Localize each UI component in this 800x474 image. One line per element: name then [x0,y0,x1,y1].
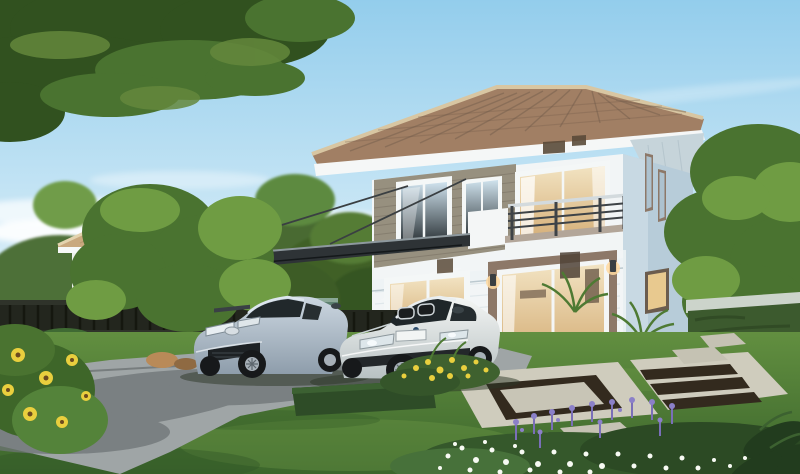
architectural-rendering [0,0,800,474]
license-plate [396,330,426,342]
side-window-lit [645,268,669,314]
